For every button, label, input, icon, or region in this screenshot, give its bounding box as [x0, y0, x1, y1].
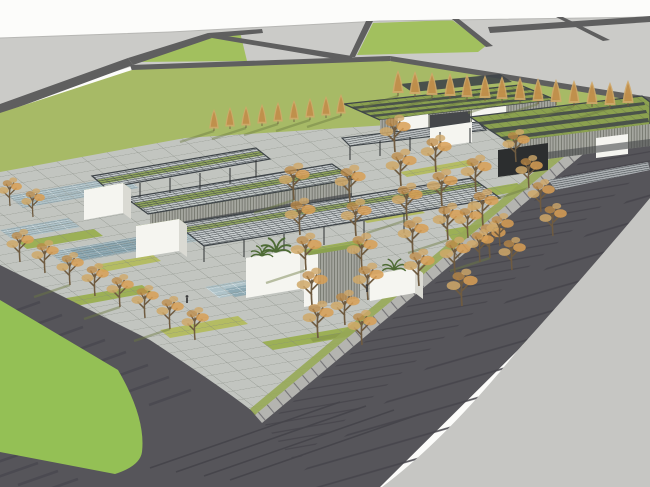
site-render: 3d-architectural-rendering: [0, 0, 650, 487]
architectural-render-viewport: 3d-architectural-rendering: [0, 0, 650, 487]
